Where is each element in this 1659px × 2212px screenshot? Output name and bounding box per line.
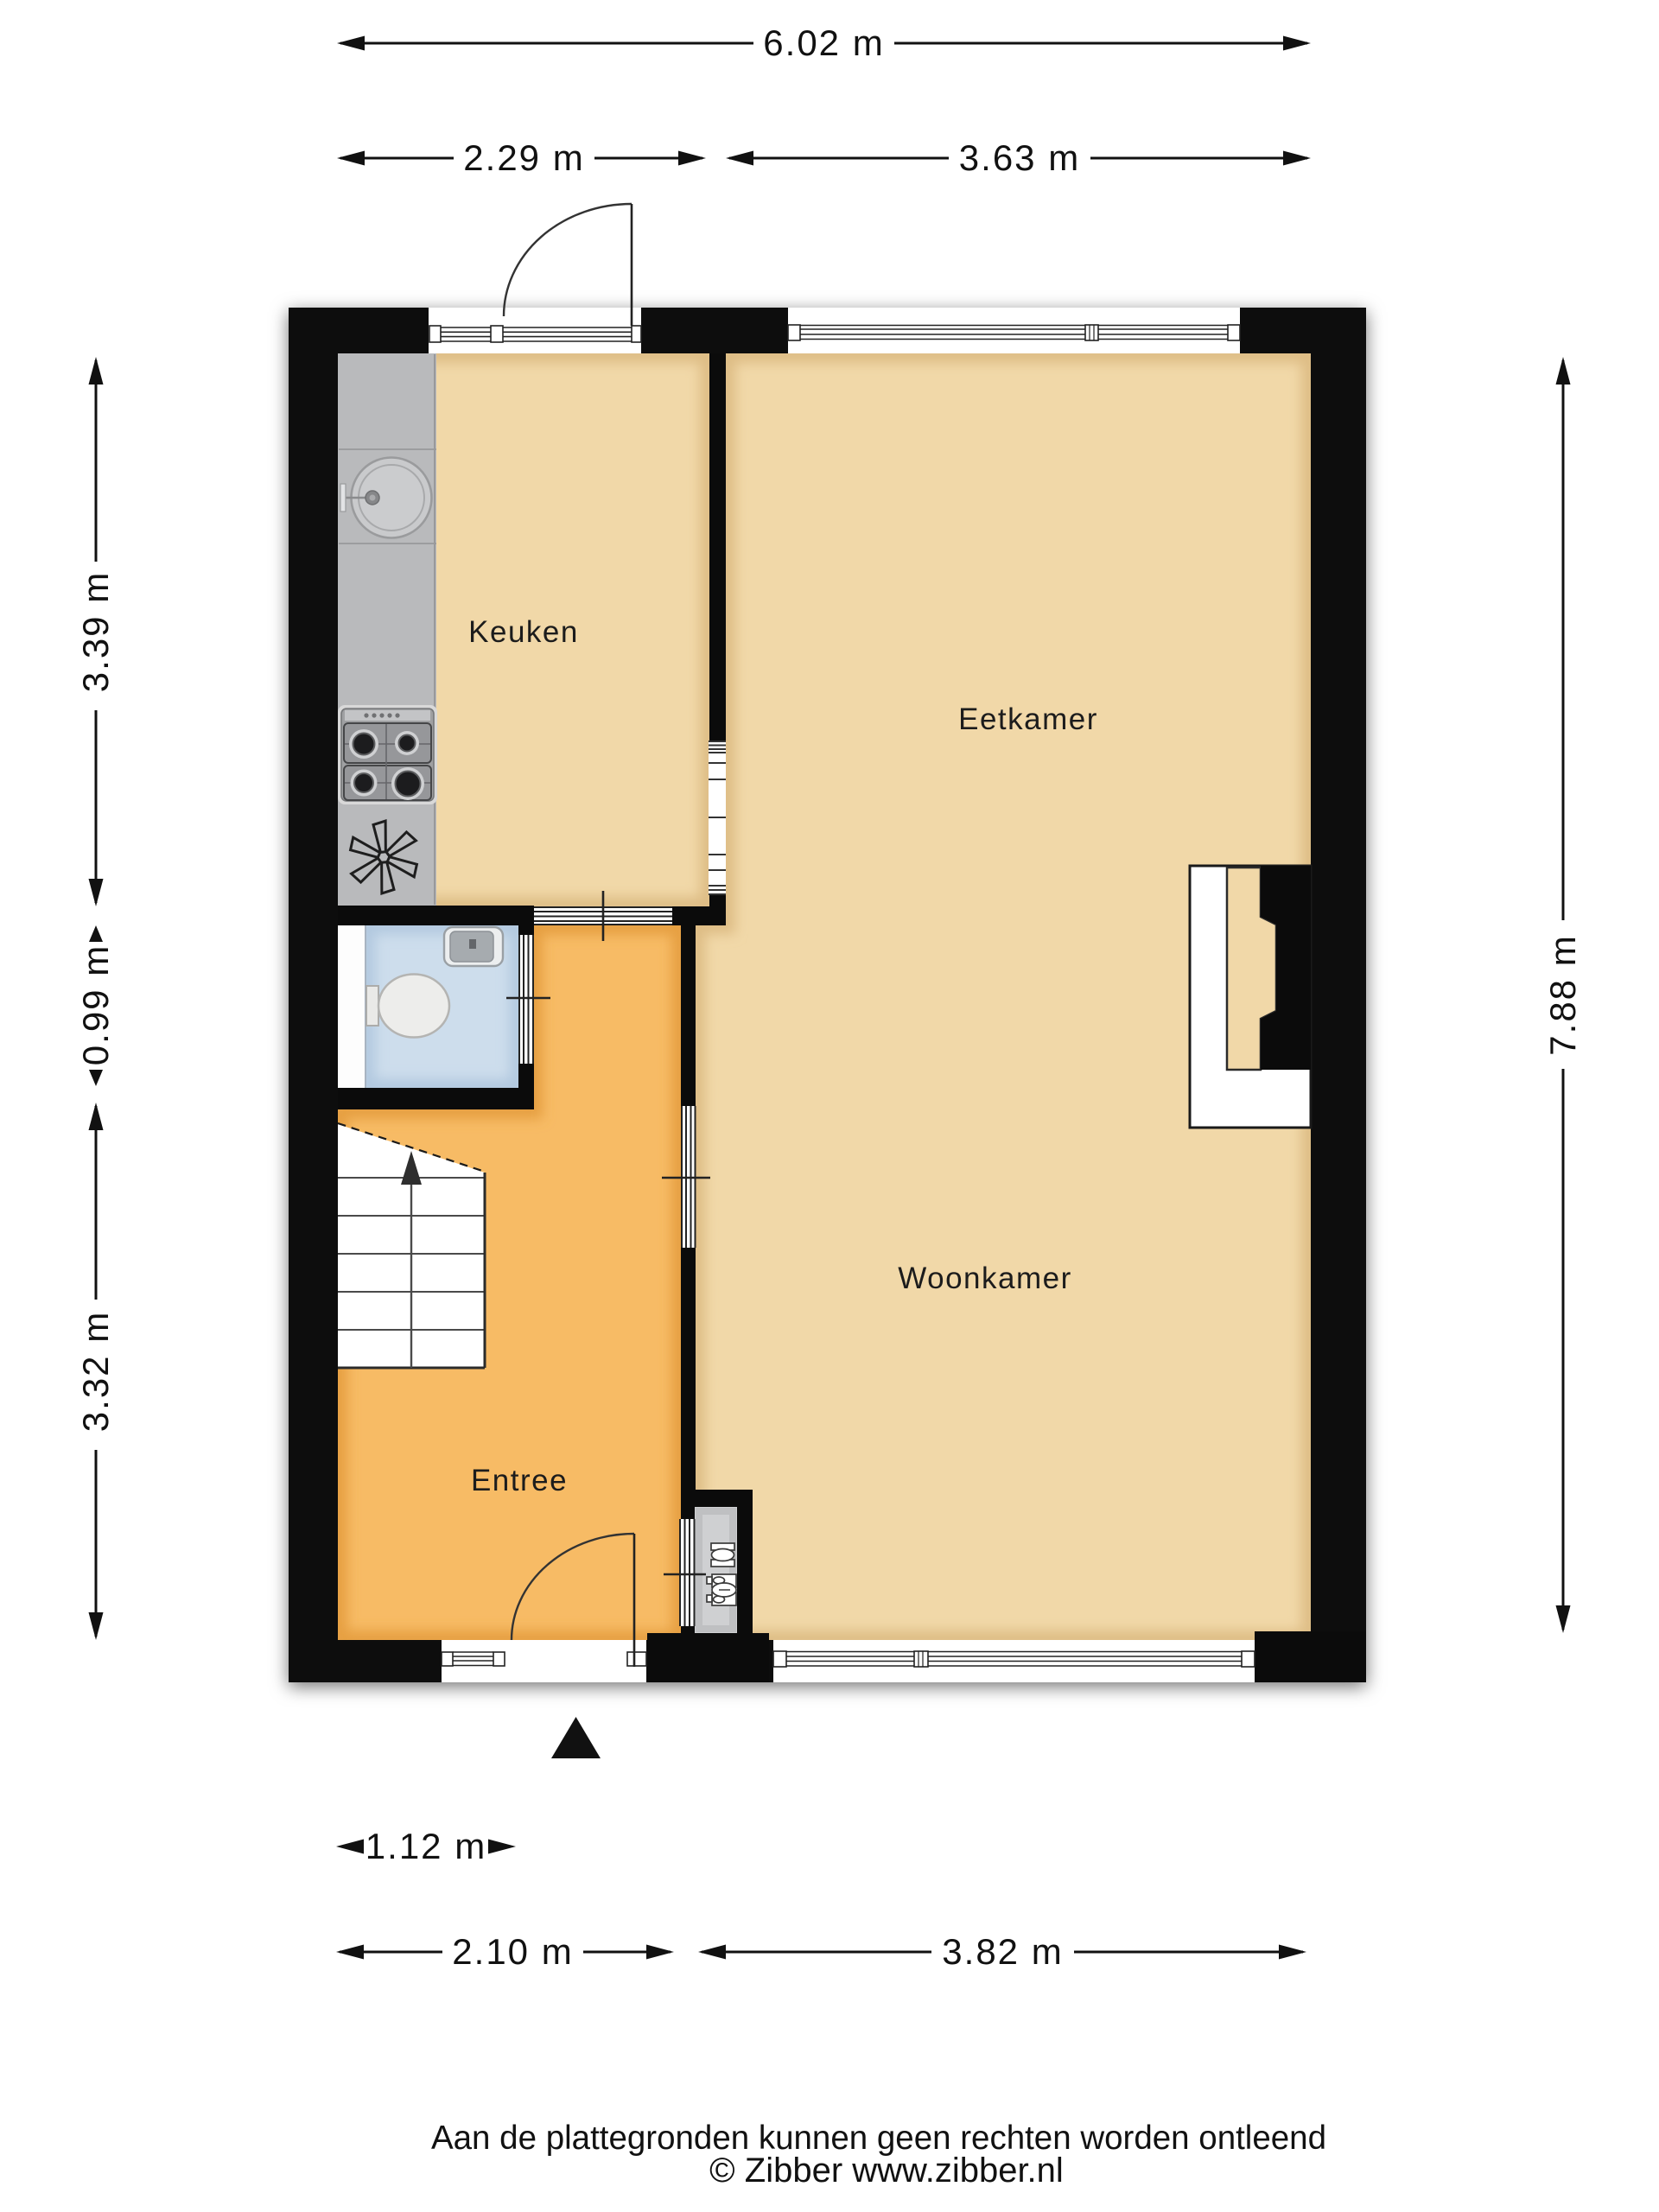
- svg-text:3.39 m: 3.39 m: [75, 571, 116, 692]
- svg-text:7.88 m: 7.88 m: [1542, 934, 1583, 1055]
- svg-text:Eetkamer: Eetkamer: [958, 702, 1098, 736]
- svg-text:Entree: Entree: [471, 1464, 568, 1497]
- svg-text:3.32 m: 3.32 m: [75, 1311, 116, 1432]
- svg-text:3.63 m: 3.63 m: [959, 137, 1080, 178]
- svg-text:2.10 m: 2.10 m: [452, 1931, 573, 1972]
- svg-text:3.82 m: 3.82 m: [942, 1931, 1063, 1972]
- svg-text:© Zibber www.zibber.nl: © Zibber www.zibber.nl: [709, 2152, 1064, 2190]
- svg-text:0.99 m: 0.99 m: [75, 944, 116, 1065]
- svg-text:2.29 m: 2.29 m: [463, 137, 584, 178]
- svg-text:Woonkamer: Woonkamer: [898, 1262, 1072, 1295]
- svg-text:Keuken: Keuken: [468, 615, 579, 649]
- svg-text:6.02 m: 6.02 m: [763, 22, 884, 63]
- svg-text:1.12 m: 1.12 m: [365, 1826, 486, 1866]
